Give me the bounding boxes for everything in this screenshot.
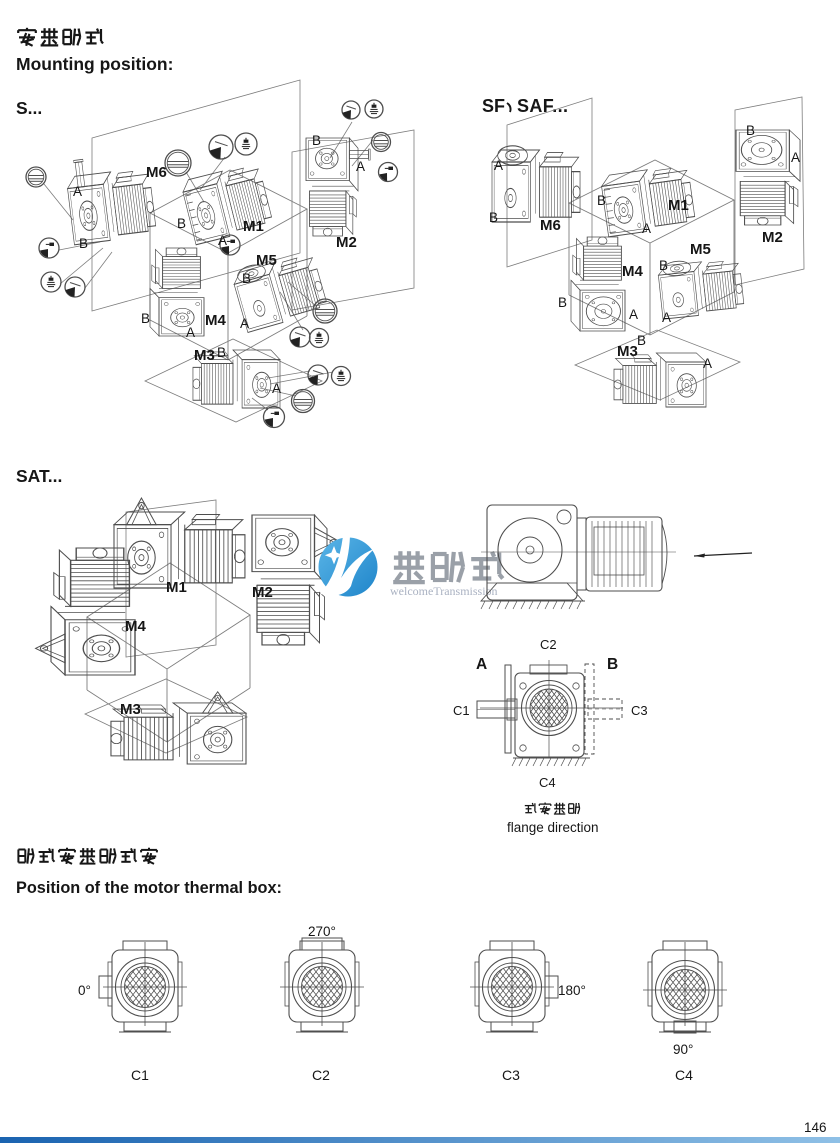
svg-text:C2: C2 — [312, 1067, 330, 1083]
svg-text:0°: 0° — [78, 983, 91, 998]
svg-text:Mounting position:: Mounting position: — [16, 54, 173, 74]
svg-text:M6: M6 — [540, 217, 561, 234]
svg-text:A: A — [186, 325, 195, 340]
svg-text:B: B — [489, 210, 498, 225]
svg-text:M1: M1 — [243, 218, 264, 235]
svg-text:270°: 270° — [308, 924, 336, 939]
svg-text:Position of the motor thermal: Position of the motor thermal box: — [16, 879, 282, 897]
svg-text:A: A — [791, 150, 800, 165]
svg-text:M5: M5 — [690, 241, 711, 258]
svg-text:A: A — [494, 158, 503, 173]
svg-text:M3: M3 — [617, 343, 638, 360]
svg-text:B: B — [312, 133, 321, 148]
svg-text:B: B — [242, 271, 251, 286]
svg-text:C1: C1 — [131, 1067, 149, 1083]
svg-text:M3: M3 — [194, 347, 215, 364]
svg-text:M6: M6 — [146, 164, 167, 181]
svg-text:A: A — [476, 656, 487, 673]
svg-text:A: A — [703, 356, 712, 371]
svg-text:M4: M4 — [205, 312, 226, 329]
svg-text:B: B — [607, 656, 618, 673]
svg-text:C4: C4 — [539, 775, 556, 790]
svg-text:SAT...: SAT... — [16, 466, 62, 486]
svg-text:M1: M1 — [166, 579, 187, 596]
svg-text:flange direction: flange direction — [507, 820, 599, 835]
svg-text:146: 146 — [804, 1120, 827, 1135]
svg-text:B: B — [597, 193, 606, 208]
svg-text:180°: 180° — [558, 983, 586, 998]
svg-text:C1: C1 — [453, 703, 470, 718]
svg-text:B: B — [177, 216, 186, 231]
svg-text:C3: C3 — [631, 703, 648, 718]
svg-text:M2: M2 — [762, 229, 783, 246]
svg-text:A: A — [662, 310, 671, 325]
svg-text:M5: M5 — [256, 252, 277, 269]
svg-text:SF: SF — [482, 96, 505, 116]
svg-text:90°: 90° — [673, 1042, 693, 1057]
svg-text:M1: M1 — [668, 197, 689, 214]
svg-text:B: B — [217, 345, 226, 360]
svg-text:A: A — [356, 159, 365, 174]
svg-text:A: A — [240, 316, 249, 331]
svg-text:B: B — [659, 258, 668, 273]
svg-text:A: A — [629, 307, 638, 322]
svg-text:B: B — [79, 236, 88, 251]
svg-text:welcomeTransmission: welcomeTransmission — [390, 584, 498, 598]
svg-text:C2: C2 — [540, 637, 557, 652]
svg-text:M2: M2 — [252, 584, 273, 601]
svg-text:C4: C4 — [675, 1067, 693, 1083]
svg-text:A: A — [73, 184, 82, 199]
svg-text:S...: S... — [16, 98, 42, 118]
svg-text:B: B — [746, 123, 755, 138]
svg-text:M3: M3 — [120, 701, 141, 718]
svg-text:C3: C3 — [502, 1067, 520, 1083]
svg-text:B: B — [558, 295, 567, 310]
svg-text:A: A — [272, 381, 281, 396]
svg-text:M2: M2 — [336, 234, 357, 251]
svg-text:SAF...: SAF... — [517, 96, 568, 116]
svg-text:A: A — [642, 221, 651, 236]
svg-text:B: B — [637, 333, 646, 348]
svg-text:A: A — [218, 233, 227, 248]
svg-text:M4: M4 — [125, 618, 146, 635]
svg-text:B: B — [141, 311, 150, 326]
svg-text:M4: M4 — [622, 263, 643, 280]
